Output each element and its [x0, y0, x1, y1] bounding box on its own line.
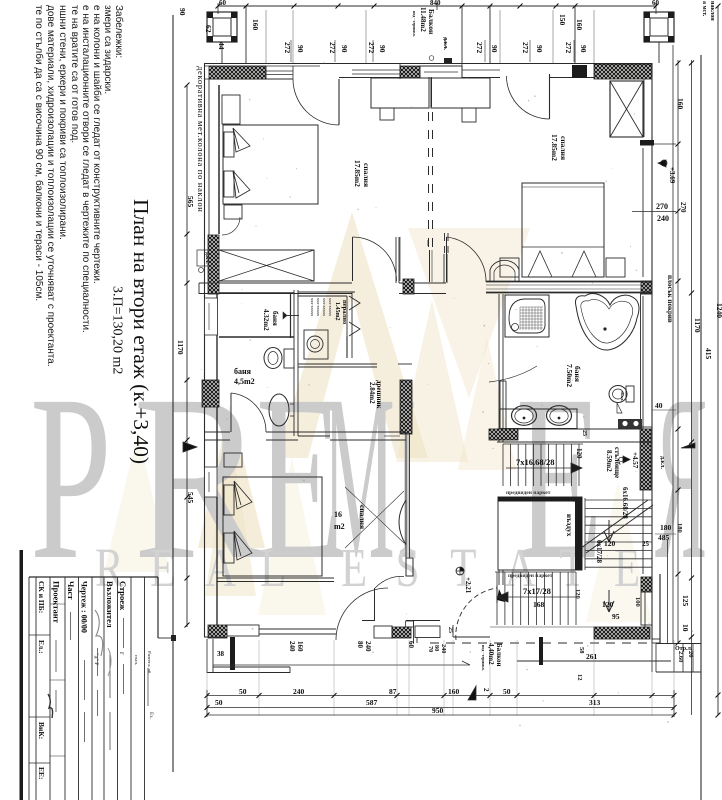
svg-text:20: 20 — [687, 651, 694, 658]
svg-text:125: 125 — [681, 595, 690, 607]
svg-text:S: S — [396, 537, 420, 598]
svg-text:Балкон: Балкон — [495, 643, 503, 667]
svg-text:180: 180 — [676, 523, 683, 533]
svg-text:декоративна мет.колона по накл: декоративна мет.колона по наклон — [196, 66, 206, 213]
svg-text:наклон: наклон — [709, 1, 715, 21]
svg-text:80: 80 — [433, 645, 440, 651]
svg-text:д.кл.: д.кл. — [204, 252, 210, 264]
svg-text:"д" Р: "д" Р — [93, 653, 98, 665]
svg-text:Ез.: Ез. — [148, 712, 153, 719]
svg-text:Балкон: Балкон — [427, 9, 436, 35]
svg-text:90: 90 — [340, 45, 349, 53]
svg-text:те по стълби да са с височина: те по стълби да са с височина 90 см, бал… — [33, 5, 45, 301]
svg-text:Част: Част — [66, 581, 76, 600]
svg-text:240: 240 — [293, 687, 305, 696]
svg-text:90: 90 — [378, 45, 387, 53]
svg-text:58: 58 — [578, 647, 585, 654]
svg-text:160: 160 — [448, 687, 460, 696]
svg-text:+2.21: +2.21 — [464, 577, 472, 594]
svg-text:2: 2 — [482, 688, 490, 692]
svg-text:баня: баня — [234, 367, 252, 376]
svg-text:стълбище: стълбище — [613, 447, 621, 478]
svg-text:Я: Я — [655, 347, 707, 609]
svg-text:е на колони и шайби се гледат: е на колони и шайби се гледат от констру… — [91, 5, 103, 284]
svg-text:272: 272 — [475, 42, 484, 54]
svg-text:Проектант: Проектант — [52, 581, 62, 624]
svg-text:7.50m2: 7.50m2 — [565, 364, 574, 387]
svg-text:272: 272 — [367, 42, 376, 54]
svg-text:11.48m2: 11.48m2 — [419, 7, 427, 32]
svg-text:4,5m2: 4,5m2 — [234, 377, 255, 386]
svg-text:ншни стени, еркери и покриви с: ншни стени, еркери и покриви са топлоизо… — [57, 5, 68, 240]
svg-text:7x17/28: 7x17/28 — [523, 586, 551, 596]
svg-text:160: 160 — [296, 641, 304, 652]
svg-text:38: 38 — [217, 650, 225, 658]
svg-text:415: 415 — [704, 348, 713, 360]
svg-text:Строеж: Строеж — [118, 581, 128, 611]
svg-text:485: 485 — [658, 533, 670, 542]
svg-text:87: 87 — [389, 687, 397, 696]
svg-text:44: 44 — [217, 42, 226, 50]
svg-text:Разтегл. об.: Разтегл. об. — [147, 651, 152, 674]
svg-text:240: 240 — [440, 644, 447, 653]
svg-text:спалня: спалня — [358, 505, 367, 529]
svg-text:1240: 1240 — [715, 303, 722, 318]
svg-text:E: E — [614, 537, 640, 598]
svg-text:62: 62 — [204, 25, 213, 33]
svg-text:587: 587 — [366, 698, 378, 707]
svg-text:спалня: спалня — [362, 163, 371, 187]
svg-text:ЕЕ:: ЕЕ: — [37, 767, 46, 780]
svg-text:272: 272 — [521, 42, 530, 54]
svg-text:90: 90 — [178, 8, 187, 16]
svg-text:тоал.: тоал. — [620, 391, 625, 401]
svg-text:2.84m2: 2.84m2 — [368, 382, 376, 404]
svg-text:120: 120 — [602, 600, 614, 609]
svg-text:предвиден паркет: предвиден паркет — [508, 573, 553, 579]
svg-text:е на инсталационните отвори се: е на инсталационните отвори се гледат в … — [80, 5, 91, 333]
svg-text:m2: m2 — [334, 522, 345, 531]
svg-text:Забележки:: Забележки: — [113, 5, 125, 58]
svg-text:60: 60 — [407, 641, 415, 649]
svg-text:168: 168 — [533, 600, 545, 609]
svg-text:д.кл.: д.кл. — [659, 456, 665, 469]
svg-text:270: 270 — [679, 202, 687, 213]
svg-text:ВиК:: ВиК: — [37, 722, 46, 739]
svg-text:+4.57: +4.57 — [631, 452, 639, 469]
svg-text:Г: Г — [118, 652, 123, 655]
svg-text:перално: перално — [341, 300, 348, 324]
svg-text:Чертеж : 00/00: Чертеж : 00/00 — [80, 581, 89, 633]
svg-text:180: 180 — [660, 523, 672, 532]
svg-text:плосък покрив: плосък покрив — [666, 275, 674, 323]
svg-text:8.59m2: 8.59m2 — [605, 450, 613, 472]
svg-text:25: 25 — [642, 540, 650, 548]
svg-text:ххх-ххххх: ххх-ххххх — [322, 298, 327, 317]
svg-text:Ел.:: Ел.: — [37, 640, 46, 654]
svg-text:1.45m2: 1.45m2 — [334, 302, 340, 321]
svg-text:545: 545 — [186, 492, 195, 504]
svg-text:L: L — [260, 537, 286, 598]
svg-text:под - термопл.: под - термопл. — [481, 645, 486, 671]
svg-text:240: 240 — [657, 214, 669, 223]
svg-text:261: 261 — [586, 652, 598, 661]
svg-text:под - термопл.: под - термопл. — [412, 11, 417, 37]
svg-text:ххх-ххххх: ххх-ххххх — [310, 298, 315, 317]
svg-text:12: 12 — [576, 674, 583, 681]
svg-text:90: 90 — [579, 45, 588, 53]
svg-text:те на вратите са от готов под.: те на вратите са от готов под. — [69, 5, 80, 143]
svg-text:60: 60 — [219, 0, 227, 7]
svg-text:1170: 1170 — [693, 318, 702, 333]
svg-text:90: 90 — [535, 45, 544, 53]
svg-text:240: 240 — [288, 641, 296, 652]
svg-text:120: 120 — [575, 448, 583, 459]
svg-text:4.32m2: 4.32m2 — [262, 309, 270, 331]
svg-text:160: 160 — [251, 19, 260, 31]
svg-text:272: 272 — [564, 42, 573, 54]
svg-text:съгл.: съгл. — [134, 655, 139, 665]
svg-text:17.85m2: 17.85m2 — [353, 160, 362, 187]
svg-text:змери са зидарски.: змери са зидарски. — [102, 5, 113, 94]
svg-text:спалня: спалня — [559, 136, 568, 160]
svg-text:100: 100 — [634, 597, 641, 607]
svg-text:Възложител: Възложител — [105, 581, 115, 628]
svg-text:80: 80 — [356, 641, 364, 649]
svg-text:313: 313 — [589, 698, 601, 707]
svg-text:565: 565 — [186, 196, 195, 208]
svg-text:160: 160 — [676, 98, 685, 110]
svg-text:2.60: 2.60 — [677, 651, 684, 662]
svg-text:предвиден паркет: предвиден паркет — [506, 490, 551, 496]
svg-text:д.кл.: д.кл. — [442, 37, 448, 50]
svg-text:150: 150 — [558, 14, 567, 26]
svg-text:25: 25 — [581, 430, 587, 436]
svg-text:въздух: въздух — [565, 514, 574, 537]
svg-text:90: 90 — [490, 45, 499, 53]
svg-text:120: 120 — [604, 539, 616, 548]
svg-text:План на втори етаж (к.+3,40): План на втори етаж (к.+3,40) — [129, 199, 153, 464]
svg-text:160: 160 — [575, 19, 584, 31]
svg-text:СК и ПБ:: СК и ПБ: — [37, 581, 46, 613]
svg-text:4,40m2: 4,40m2 — [487, 643, 495, 665]
svg-text:950: 950 — [432, 706, 444, 715]
svg-text:120: 120 — [574, 589, 581, 599]
svg-text:ххх-ххххх: ххх-ххххх — [316, 298, 321, 317]
svg-text:840: 840 — [430, 0, 441, 7]
svg-text:6x17/28: 6x17/28 — [595, 540, 603, 563]
svg-text:1170: 1170 — [176, 340, 185, 355]
svg-text:E: E — [341, 537, 367, 598]
svg-text:240: 240 — [364, 641, 372, 652]
svg-text:95: 95 — [612, 612, 620, 621]
svg-text:17.85m2: 17.85m2 — [550, 134, 559, 161]
svg-text:40: 40 — [655, 401, 663, 410]
svg-text:70: 70 — [427, 646, 434, 652]
svg-text:+3.69: +3.69 — [668, 167, 676, 184]
svg-text:60: 60 — [652, 0, 660, 7]
svg-text:а мст.: а мст. — [701, 1, 707, 17]
svg-text:A: A — [205, 537, 236, 598]
svg-text:50: 50 — [503, 687, 511, 696]
svg-text:270: 270 — [656, 202, 668, 211]
svg-text:6x16.68/28: 6x16.68/28 — [621, 487, 629, 519]
svg-text:25: 25 — [447, 627, 453, 633]
svg-text:50: 50 — [239, 687, 247, 696]
svg-text:E: E — [150, 537, 176, 598]
svg-text:272: 272 — [283, 42, 292, 54]
svg-text:50: 50 — [215, 698, 223, 707]
svg-text:90: 90 — [296, 45, 305, 53]
svg-text:баня: баня — [271, 311, 279, 326]
svg-text:З.П=130,20 m2: З.П=130,20 m2 — [110, 286, 125, 374]
svg-text:272: 272 — [328, 42, 337, 54]
svg-text:16: 16 — [334, 510, 342, 519]
svg-text:10: 10 — [681, 624, 690, 632]
svg-text:дове материали, хидроизолации: дове материали, хидроизолации и топлоизо… — [45, 5, 56, 367]
svg-text:7x16.68/28: 7x16.68/28 — [516, 457, 555, 467]
svg-text:ххх-ххххх: ххх-ххххх — [328, 298, 333, 317]
